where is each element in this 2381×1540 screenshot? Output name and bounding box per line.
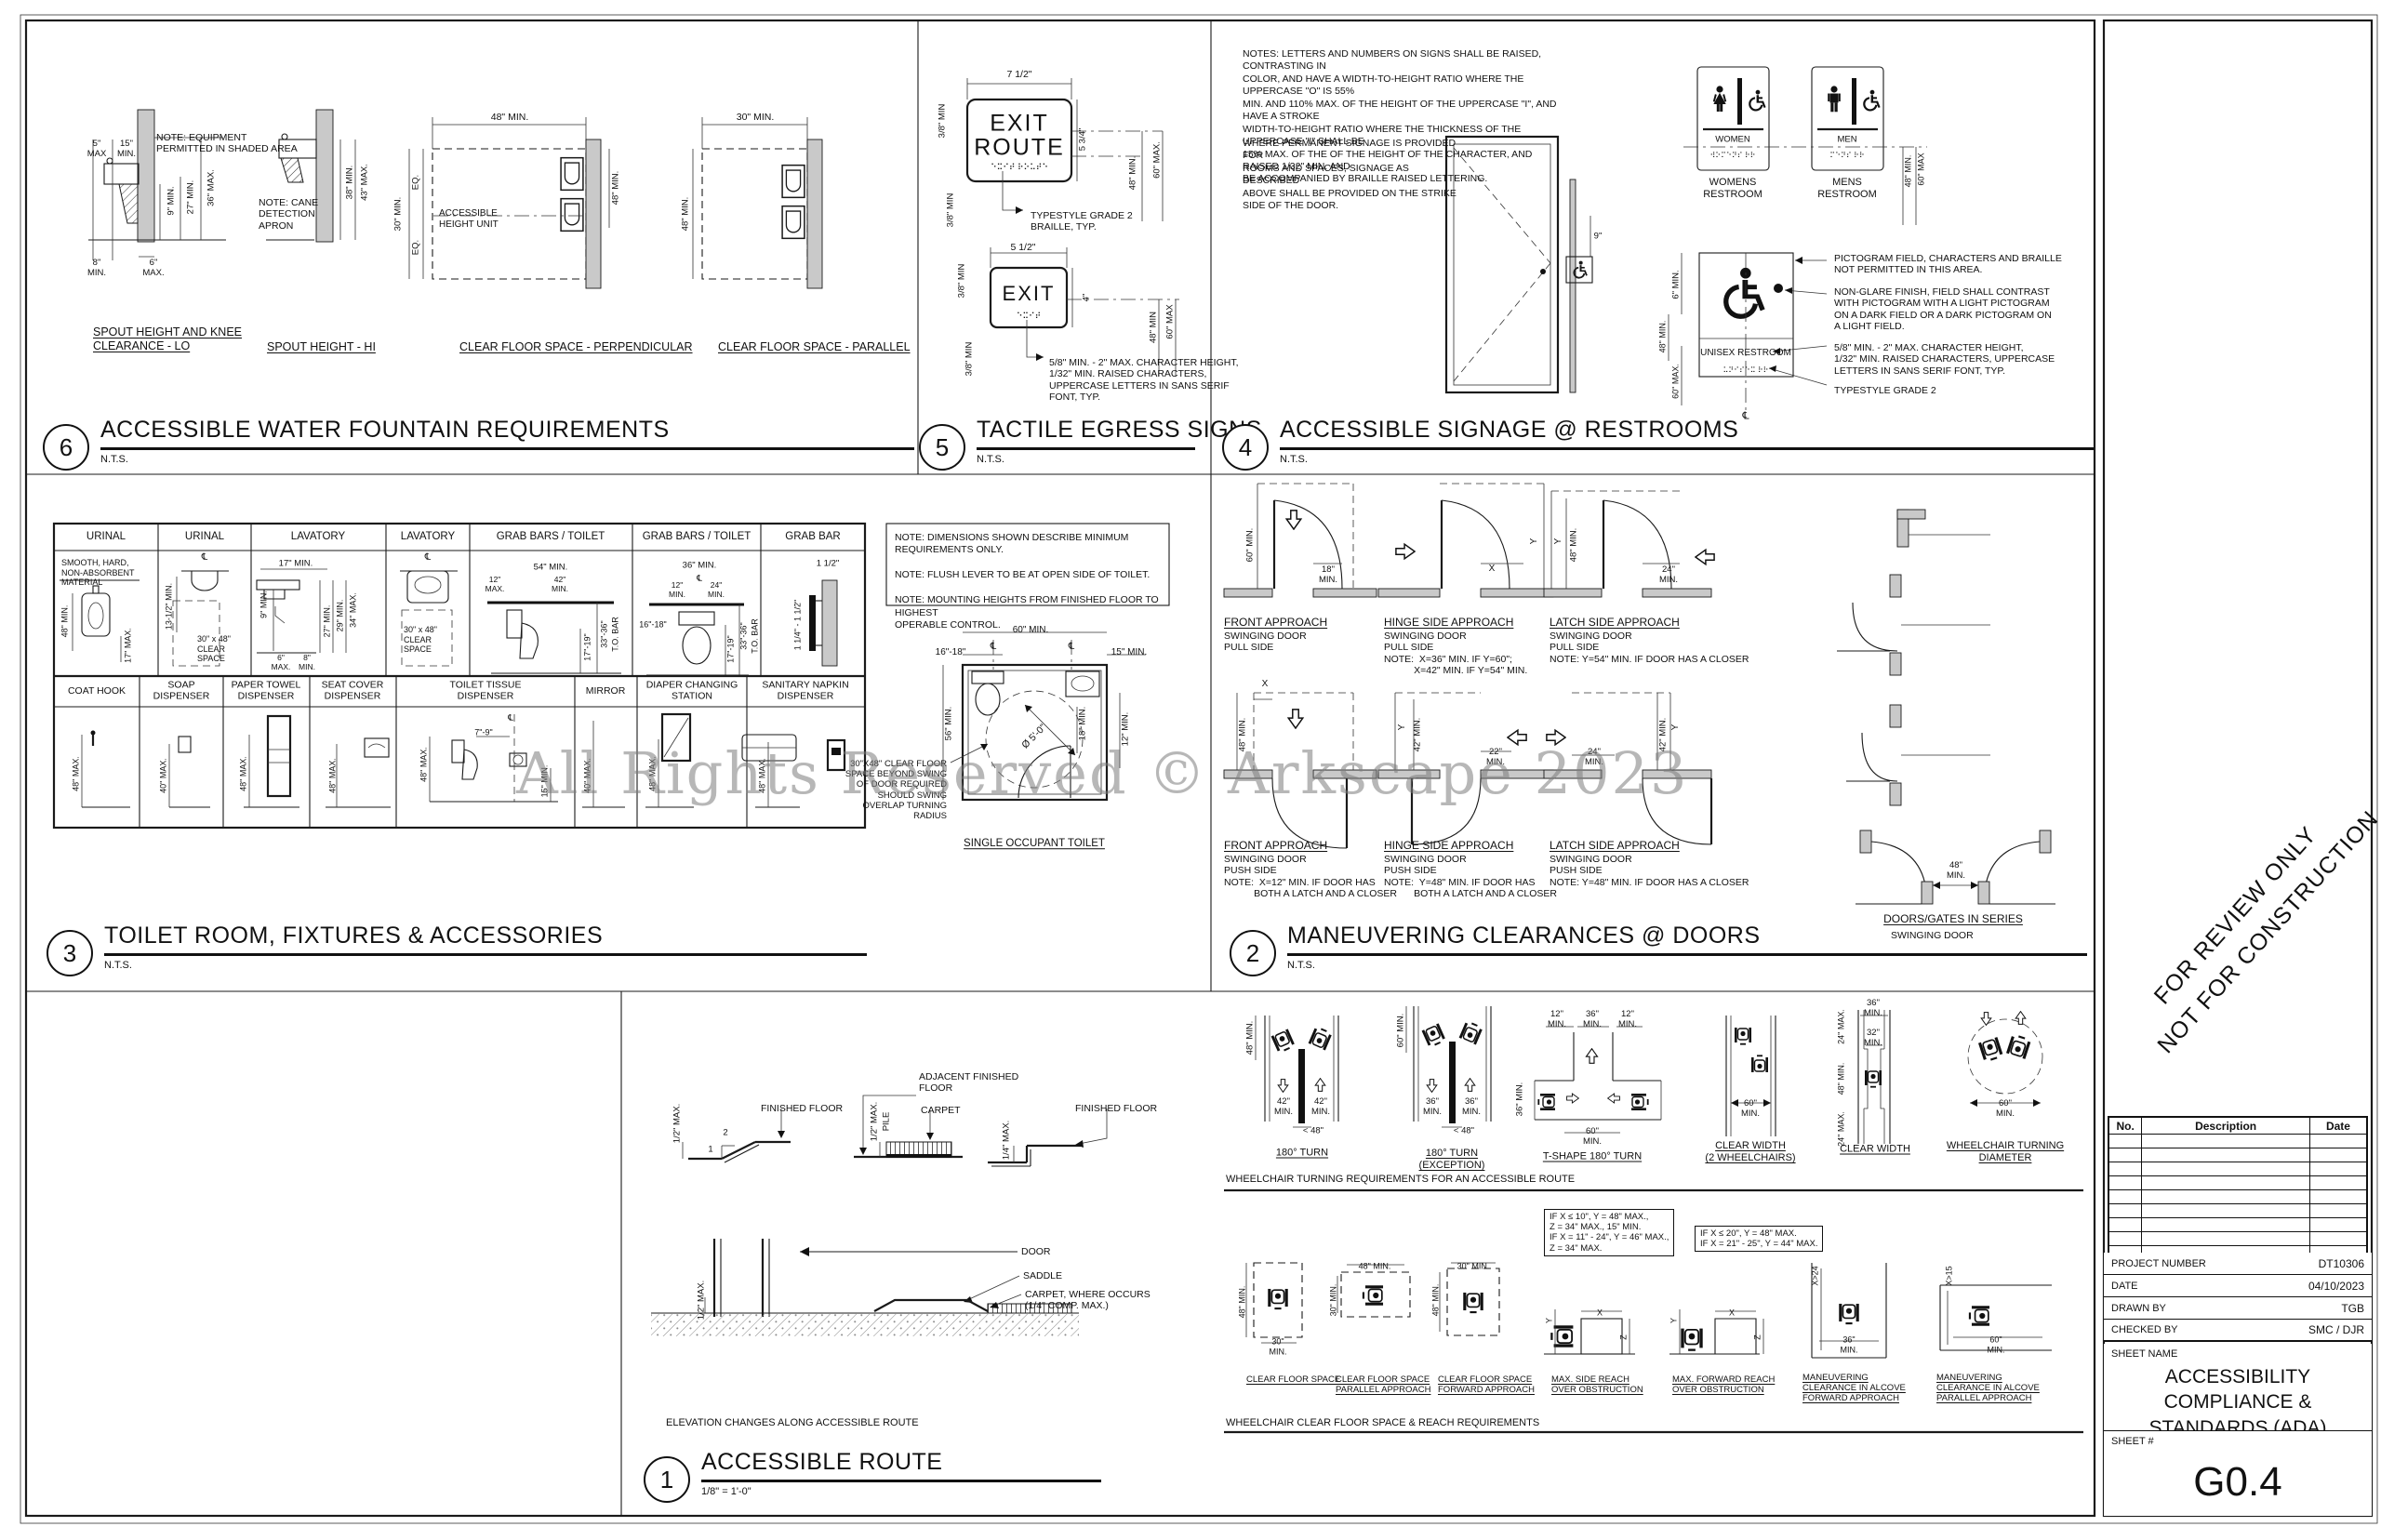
revision-cell-empty (2142, 1135, 2310, 1148)
field-label: SHEET # (2111, 1436, 2154, 1447)
womens-sign-text: WOMEN (1715, 134, 1749, 144)
detail-title-3: 3 TOILET ROOM, FIXTURES & ACCESSORIES N.… (47, 923, 867, 971)
revision-col-header: No. (2108, 1117, 2142, 1135)
dim-label: ℄ (508, 713, 513, 724)
dim-label: 30" MIN. (1457, 1262, 1490, 1272)
dim-label: 48" MIN. (1127, 156, 1137, 191)
section-caption: ELEVATION CHANGES ALONG ACCESSIBLE ROUTE (666, 1417, 919, 1429)
dim-label: 4" (1081, 294, 1091, 302)
dim-label: 56" MIN. (943, 707, 953, 741)
detail-number: 1 (660, 1466, 673, 1494)
dim-label: 48" MIN. (1837, 1063, 1847, 1095)
dim-label: 60" MAX. (1671, 364, 1682, 399)
revision-cell-empty (2142, 1176, 2310, 1190)
dim-label: 6" MAX. (272, 653, 291, 671)
dim-label: 6" MAX. (142, 258, 164, 278)
dim-label: ℄ (697, 574, 702, 584)
detail-caption: LATCH SIDE APPROACH (1550, 616, 1680, 629)
dim-label: 34" MAX. (349, 592, 359, 628)
dim-label: 36" MIN. (1841, 1334, 1858, 1354)
dim-label: Y (1553, 538, 1564, 545)
detail-title-1: 1 ACCESSIBLE ROUTE 1/8" = 1'-0" (644, 1449, 1101, 1497)
detail-caption: CLEAR FLOOR SPACE PARALLEL APPROACH (1336, 1374, 1430, 1395)
revision-cell-empty (2108, 1162, 2142, 1176)
detail-number-badge: 3 (47, 930, 93, 976)
field-label: SHEET NAME (2111, 1348, 2177, 1360)
dim-label: 1/2" MAX. (696, 1281, 706, 1320)
dim-label: 2 (723, 1127, 727, 1137)
detail-number-badge: 1 (644, 1456, 690, 1503)
revision-row (2108, 1148, 2367, 1162)
dim-label: 30" MIN. (1329, 1284, 1339, 1317)
revision-cell-empty (2309, 1232, 2367, 1246)
revision-cell-empty (2108, 1176, 2142, 1190)
revision-cell-empty (2108, 1135, 2142, 1148)
dim-label: 36" MIN. (1423, 1096, 1442, 1117)
dim-label: NOTE: EQUIPMENT PERMITTED IN SHADED AREA (156, 132, 298, 155)
dim-label: X (1262, 679, 1269, 690)
dim-label: 60" MIN. (1395, 1014, 1405, 1048)
dim-label: 48" MIN (1148, 312, 1158, 343)
braille-text: ⠺⠕⠍⠑⠝⠎ ⠗⠗ (1709, 151, 1755, 159)
revision-row (2108, 1162, 2367, 1176)
table-header: GRAB BARS / TOILET (497, 531, 605, 544)
revision-cell-empty (2309, 1204, 2367, 1218)
table-header: COAT HOOK (68, 685, 126, 697)
dim-label: 27" MIN. (323, 605, 333, 638)
dim-label: 60" MAX. (1151, 141, 1162, 179)
dim-label: 48" MIN. (491, 112, 529, 123)
dim-label: 1/2" MAX. (672, 1104, 682, 1143)
revision-cell-empty (2309, 1162, 2367, 1176)
dim-label: 42" MIN. (552, 575, 568, 593)
dim-label: 60" MAX (1917, 153, 1927, 185)
detail-caption: CLEAR WIDTH (1840, 1144, 1910, 1156)
dim-label: 60" MIN. (1244, 528, 1255, 563)
detail-scale: N.T.S. (977, 454, 1262, 465)
dim-label: 33"-36" (739, 622, 750, 649)
title-rule (977, 447, 1195, 450)
date-value: 04/10/2023 (2308, 1280, 2364, 1293)
detail-caption: HINGE SIDE APPROACH (1384, 839, 1513, 852)
dim-label: NOTE: CANE DETECTION APRON (259, 197, 318, 232)
dim-label: SWINGING DOOR PUSH SIDE NOTE: Y=48" MIN.… (1384, 854, 1557, 900)
dim-label: T.O. BAR (611, 617, 621, 652)
dim-label: 5/8" MIN. - 2" MAX. CHARACTER HEIGHT, 1/… (1834, 342, 2055, 377)
revision-cell-empty (2142, 1232, 2310, 1246)
detail-caption: CLEAR WIDTH (2 WHEELCHAIRS) (1705, 1140, 1795, 1164)
dim-label: 15" MIN. (1111, 647, 1148, 658)
dim-label: ℄ (202, 552, 207, 564)
dim-label: 13-1/2" MIN. (165, 583, 175, 630)
dim-label: 38" MIN. (344, 166, 354, 200)
detail-title-4: 4 ACCESSIBLE SIGNAGE @ RESTROOMS N.T.S. (1222, 417, 2094, 465)
dim-label: ℄ (1069, 642, 1074, 653)
dim-label: 29" MIN. (336, 600, 346, 632)
mens-sign-text: MEN (1837, 134, 1856, 144)
dim-label: SWINGING DOOR PUSH SIDE NOTE: Y=48" MIN.… (1550, 854, 1749, 888)
dim-label: 60" MIN. (1583, 1126, 1602, 1147)
dim-label: X (1729, 1308, 1735, 1319)
detail-number-badge: 6 (43, 424, 89, 471)
revision-cell-empty (2108, 1232, 2142, 1246)
dim-label: 3/8" MIN (945, 193, 955, 228)
dim-label: IF X ≤ 10", Y = 48" MAX., Z = 34" MAX., … (1544, 1209, 1674, 1256)
dim-label: NON-GLARE FINISH, FIELD SHALL CONTRAST W… (1834, 286, 2052, 333)
revision-cell-empty (2108, 1190, 2142, 1204)
drawing-sheet: 5" MAX15" MIN.NOTE: EQUIPMENT PERMITTED … (0, 0, 2381, 1540)
detail-title: ACCESSIBLE SIGNAGE @ RESTROOMS (1280, 417, 2094, 447)
dim-label: 48" MAX. (72, 756, 82, 791)
dim-label: FINISHED FLOOR (1075, 1103, 1157, 1114)
toilet-room-notes: NOTE: DIMENSIONS SHOWN DESCRIBE MINIMUM … (895, 532, 1164, 632)
dim-label: TYPESTYLE GRADE 2 BRAILLE, TYP. (1031, 210, 1133, 233)
detail-caption: MANEUVERING CLEARANCE IN ALCOVE PARALLEL… (1936, 1373, 2040, 1404)
dim-label: ADJACENT FINISHED FLOOR (919, 1071, 1018, 1095)
section-caption: WHEELCHAIR CLEAR FLOOR SPACE & REACH REQ… (1226, 1417, 1539, 1429)
dim-label: SWINGING DOOR PUSH SIDE NOTE: X=12" MIN.… (1224, 854, 1397, 900)
dim-label: Y (1529, 538, 1540, 545)
table-header: TOILET TISSUE DISPENSER (449, 680, 521, 703)
accessible-route-drawing (651, 1006, 2083, 1432)
dim-label: WOMENS RESTROOM (1703, 177, 1762, 201)
dim-label: 12" MIN. (1548, 1009, 1566, 1029)
dim-label: < 48" (1454, 1125, 1474, 1135)
field-label: PROJECT NUMBER (2111, 1258, 2206, 1269)
revision-row (2108, 1135, 2367, 1148)
project-number-row: PROJECT NUMBER DT10306 (2104, 1253, 2372, 1275)
dim-label: 7 1/2" (1006, 69, 1031, 80)
dim-label: 30" x 48" CLEAR SPACE (404, 625, 437, 655)
detail-number: 5 (936, 433, 949, 462)
table-header: GRAB BARS / TOILET (643, 531, 752, 544)
dim-label: Y (1670, 724, 1682, 731)
dim-label: 60" MIN. (1741, 1098, 1760, 1119)
dim-label: 12" MIN. (1618, 1009, 1637, 1029)
dim-label: 8" MIN. (87, 258, 106, 278)
dim-label: 33"-36" (600, 620, 610, 647)
revision-cell-empty (2142, 1218, 2310, 1232)
table-header: SOAP DISPENSER (153, 680, 210, 703)
dim-label: 48" MIN. (1568, 528, 1578, 563)
dim-label: 24" MIN. (1659, 564, 1678, 585)
dim-label: 32" MIN. (1864, 1028, 1882, 1048)
table-header: MIRROR (586, 685, 626, 697)
date-row: DATE 04/10/2023 (2104, 1275, 2372, 1297)
dim-label: 60" MAX (1164, 304, 1175, 339)
dim-label: 36" MIN. (683, 560, 717, 570)
dim-label: 17" MIN. (279, 558, 313, 568)
dim-label: 54" MIN. (534, 562, 568, 572)
sheet-name: ACCESSIBILITY COMPLIANCE & STANDARDS (AD… (2104, 1364, 2372, 1440)
field-label: DRAWN BY (2111, 1303, 2166, 1314)
dim-label: SMOOTH, HARD, NON-ABSORBENT MATERIAL (61, 558, 135, 588)
dim-label: 24" MIN. (708, 580, 725, 599)
detail-caption: HINGE SIDE APPROACH (1384, 616, 1513, 629)
dim-label: 36" MIN. (1583, 1009, 1602, 1029)
sheet-name-section: SHEET NAME ACCESSIBILITY COMPLIANCE & ST… (2104, 1344, 2372, 1431)
dim-label: 17"-19" (583, 633, 593, 660)
dim-label: 48" MIN. (1904, 155, 1914, 188)
detail-caption: SPOUT HEIGHT - HI (267, 340, 376, 354)
dim-label: 36" MIN. (1462, 1096, 1481, 1117)
detail-caption: MAX. FORWARD REACH OVER OBSTRUCTION (1672, 1374, 1775, 1395)
detail-title: TOILET ROOM, FIXTURES & ACCESSORIES (104, 923, 867, 953)
detail-title: TACTILE EGRESS SIGNS (977, 417, 1262, 447)
revision-row (2108, 1218, 2367, 1232)
dim-label: PILE (881, 1112, 891, 1132)
braille-text: ⠑⠭⠊⠞ (1017, 312, 1041, 322)
dim-label: EQ. (410, 175, 420, 190)
dim-label: 5" MAX (87, 139, 107, 159)
dim-label: 48" MIN. (1359, 1262, 1391, 1272)
dim-label: 60" MIN. (1988, 1334, 2005, 1354)
dim-label: 18" MIN. (1077, 707, 1087, 741)
dim-label: 30" MIN. (737, 112, 775, 123)
title-rule (104, 953, 867, 956)
field-label: CHECKED BY (2111, 1324, 2178, 1335)
dim-label: 5 1/2" (1010, 242, 1035, 253)
table-header: DIAPER CHANGING STATION (646, 680, 738, 703)
dim-label: 3/8" MIN (937, 104, 947, 139)
dim-label: 48" MIN. (1244, 1021, 1255, 1055)
revision-cell-empty (2108, 1148, 2142, 1162)
dim-label: 48" MAX. (239, 756, 249, 791)
detail-caption: MANEUVERING CLEARANCE IN ALCOVE FORWARD … (1802, 1373, 1906, 1404)
exit-sign-text: EXIT (1003, 284, 1056, 304)
dim-label: 48" MIN. (1658, 321, 1669, 353)
dim-label: 48" MIN. (1947, 860, 1965, 881)
dim-label: 5 3/4" (1077, 128, 1087, 152)
dim-label: Z (1619, 1334, 1629, 1340)
detail-caption: 180° TURN (1276, 1148, 1328, 1160)
detail-caption: LATCH SIDE APPROACH (1550, 839, 1680, 852)
table-header: LAVATORY (401, 531, 455, 544)
revision-cell-empty (2142, 1204, 2310, 1218)
checked-by-row: CHECKED BY SMC / DJR (2104, 1320, 2372, 1342)
table-header: URINAL (86, 531, 126, 544)
dim-label: Y (1397, 724, 1408, 731)
revision-cell-empty (2142, 1162, 2310, 1176)
dim-label: 48" MAX. (419, 747, 430, 782)
dim-label: CARPET (921, 1105, 961, 1116)
title-rule (1280, 447, 2094, 450)
dim-label: 42" MIN. (1311, 1096, 1330, 1117)
detail-caption: FRONT APPROACH (1224, 839, 1327, 852)
dim-label: 12" MAX. (486, 575, 505, 593)
dim-label: 48" MIN. (680, 197, 690, 232)
dim-label: 16"-18" (936, 647, 966, 658)
revision-row (2108, 1190, 2367, 1204)
dim-label: 36" MAX. (206, 169, 216, 206)
dim-label: 27" MIN. (185, 180, 195, 215)
dim-label: X (1597, 1308, 1603, 1319)
dim-label: 1 (708, 1144, 712, 1154)
dim-label: SADDLE (1023, 1270, 1062, 1281)
exit-route-sign-text: EXIT ROUTE (974, 113, 1065, 160)
detail-number: 3 (63, 939, 76, 968)
detail-number-badge: 5 (919, 424, 965, 471)
checked-by-value: SMC / DJR (2308, 1323, 2364, 1336)
dim-label: X (1489, 564, 1496, 575)
dim-label: 36" MIN. (1864, 998, 1882, 1018)
dim-label: 24" MAX. (1837, 1111, 1847, 1147)
detail-title-2: 2 MANEUVERING CLEARANCES @ DOORS N.T.S. (1230, 923, 2087, 971)
revision-row (2108, 1232, 2367, 1246)
dim-label: 9" MIN. (166, 186, 176, 215)
dim-label: X>15 (1945, 1266, 1955, 1285)
table-header: GRAB BAR (785, 531, 840, 544)
detail-caption: SINGLE OCCUPANT TOILET (964, 838, 1105, 851)
dim-label: DOOR (1021, 1246, 1051, 1257)
dim-label: 7"-9" (474, 728, 492, 738)
detail-scale: 1/8" = 1'-0" (701, 1486, 1101, 1497)
detail-number: 6 (60, 433, 73, 462)
dim-label: 42" MIN. (1274, 1096, 1293, 1117)
project-number-value: DT10306 (2319, 1257, 2364, 1270)
revision-cell-empty (2309, 1176, 2367, 1190)
dim-label: 48" MIN. (60, 605, 71, 638)
drawn-by-row: DRAWN BY TGB (2104, 1297, 2372, 1320)
dim-label: ℄ (991, 642, 996, 653)
table-header: PAPER TOWEL DISPENSER (232, 680, 301, 703)
dim-label: 36" MIN. (1514, 1082, 1524, 1117)
dim-label: Y (1669, 1318, 1680, 1323)
signage-strike-side-note: WHERE PERMANENT SIGNAGE IS PROVIDED FOR … (1243, 138, 1466, 213)
dim-label: ℄ (425, 552, 431, 564)
unisex-sign-text: UNISEX RESTROOM (1700, 348, 1791, 359)
dim-label: TYPESTYLE GRADE 2 (1834, 385, 1936, 396)
detail-caption: T-SHAPE 180° TURN (1543, 1151, 1642, 1163)
detail-scale: N.T.S. (1287, 960, 2087, 971)
section-caption: WHEELCHAIR TURNING REQUIREMENTS FOR AN A… (1226, 1174, 1575, 1186)
detail-caption: MAX. SIDE REACH OVER OBSTRUCTION (1551, 1374, 1643, 1395)
revision-row (2108, 1176, 2367, 1190)
dim-label: FINISHED FLOOR (761, 1103, 843, 1114)
detail-scale: N.T.S. (104, 960, 867, 971)
dim-label: 1/4" MAX. (1001, 1121, 1011, 1160)
dim-label: 1 1/2" (817, 558, 840, 568)
braille-text: ⠥⠝⠊⠎⠑⠭ ⠗⠗ (1723, 365, 1768, 374)
dim-label: 24" MAX. (1837, 1009, 1847, 1044)
dim-label: X>24 (1811, 1266, 1821, 1285)
table-header: URINAL (185, 531, 224, 544)
watermark: All Rights Reserved © Arkscape 2023 (516, 739, 1688, 807)
dim-label: 9" (1594, 231, 1603, 241)
table-header: LAVATORY (291, 531, 345, 544)
detail-caption: CLEAR FLOOR SPACE (1246, 1374, 1340, 1385)
revision-cell-empty (2309, 1218, 2367, 1232)
revision-cell-empty (2108, 1218, 2142, 1232)
detail-title-5: 5 TACTILE EGRESS SIGNS N.T.S. (919, 417, 1262, 465)
sheet-number: G0.4 (2104, 1459, 2372, 1506)
title-rule (1287, 953, 2087, 956)
table-header: SANITARY NAPKIN DISPENSER (762, 680, 848, 703)
detail-caption: 180° TURN (EXCEPTION) (1419, 1148, 1485, 1172)
dim-label: MENS RESTROOM (1817, 177, 1877, 201)
dim-label: 60" MIN. (1996, 1098, 2015, 1119)
revision-cell-empty (2108, 1204, 2142, 1218)
dim-label: EQ. (410, 240, 420, 255)
dim-label: 30" MIN. (1270, 1336, 1287, 1356)
dim-label: 30" MIN. (392, 197, 403, 232)
dim-label: T.O. BAR (751, 618, 761, 654)
dim-label: 17"-19" (726, 635, 737, 662)
field-label: DATE (2111, 1281, 2138, 1292)
detail-title: ACCESSIBLE WATER FOUNTAIN REQUIREMENTS (100, 417, 914, 447)
dim-label: SWINGING DOOR PULL SIDE (1224, 631, 1307, 654)
dim-label: 8" MIN. (299, 653, 315, 671)
revision-cell-empty (2309, 1135, 2367, 1148)
dim-label: PICTOGRAM FIELD, CHARACTERS AND BRAILLE … (1834, 253, 2062, 276)
detail-title-6: 6 ACCESSIBLE WATER FOUNTAIN REQUIREMENTS… (43, 417, 914, 465)
dim-label: 48" MIN. (1238, 1286, 1248, 1319)
dim-label: IF X ≤ 20", Y = 48" MAX. IF X = 21" - 25… (1695, 1226, 1823, 1252)
revision-header-row: No.DescriptionDate (2108, 1117, 2367, 1135)
dim-label: 5/8" MIN. - 2" MAX. CHARACTER HEIGHT, 1/… (1049, 357, 1238, 404)
detail-caption: CLEAR FLOOR SPACE FORWARD APPROACH (1438, 1374, 1535, 1395)
dim-label: ACCESSIBLE HEIGHT UNIT (439, 208, 499, 231)
revision-col-header: Date (2309, 1117, 2367, 1135)
dim-label: 18" MIN. (1319, 564, 1337, 585)
title-rule (701, 1480, 1101, 1482)
dim-label: 48" MIN. (1431, 1284, 1442, 1317)
detail-number-badge: 4 (1222, 424, 1269, 471)
title-rule (100, 447, 914, 450)
dim-label: 3/8" MIN (956, 264, 966, 299)
revision-table: No.DescriptionDate (2108, 1116, 2368, 1275)
dim-label: SWINGING DOOR PULL SIDE NOTE: X=36" MIN.… (1384, 631, 1527, 677)
revision-cell-empty (2142, 1190, 2310, 1204)
dim-label: SWINGING DOOR PULL SIDE NOTE: Y=54" MIN.… (1550, 631, 1749, 665)
dim-label: 40" MAX. (159, 758, 169, 793)
detail-caption: SPOUT HEIGHT AND KNEE CLEARANCE - LO (93, 325, 242, 353)
dim-label: 1/2" MAX. (869, 1102, 879, 1141)
dim-label: 48" MAX. (328, 758, 339, 793)
dim-label: 15" MIN. (117, 139, 136, 159)
detail-caption: CLEAR FLOOR SPACE - PERPENDICULAR (459, 340, 693, 354)
dim-label: 30" x 48" CLEAR SPACE (197, 634, 231, 664)
dim-label: 16"-18" (639, 620, 666, 631)
revision-row (2108, 1204, 2367, 1218)
dim-label: 9" MIN. (259, 591, 270, 618)
detail-title: MANEUVERING CLEARANCES @ DOORS (1287, 923, 2087, 953)
revision-cell-empty (2142, 1148, 2310, 1162)
detail-title: ACCESSIBLE ROUTE (701, 1449, 1101, 1480)
revision-cell-empty (2309, 1190, 2367, 1204)
revision-cell-empty (2309, 1148, 2367, 1162)
detail-caption: WHEELCHAIR TURNING DIAMETER (1947, 1140, 2064, 1164)
dim-label: 17" MAX. (124, 628, 134, 663)
dim-label: 1 1/4" - 1 1/2" (793, 600, 804, 650)
revision-col-header: Description (2142, 1117, 2310, 1135)
drawn-by-value: TGB (2341, 1302, 2364, 1315)
sheet-number-section: SHEET # G0.4 (2104, 1431, 2372, 1516)
detail-number: 2 (1246, 939, 1259, 968)
braille-text: ⠑⠭⠊⠞ ⠗⠕⠥⠞⠑ (991, 163, 1048, 173)
dim-label: CARPET, WHERE OCCURS (1/4" COMP. MAX.) (1025, 1289, 1151, 1312)
dim-label: 48" MIN. (610, 171, 620, 206)
dim-label: Z (1753, 1334, 1763, 1340)
detail-caption: CLEAR FLOOR SPACE - PARALLEL (718, 340, 911, 354)
dim-label: 6" MIN. (1670, 270, 1681, 299)
dim-label: 12" MIN. (669, 580, 685, 599)
detail-scale: N.T.S. (100, 454, 914, 465)
dim-label: 3/8" MIN (964, 342, 974, 377)
braille-text: ⠍⠑⠝⠎ ⠗⠗ (1829, 151, 1864, 159)
detail-number: 4 (1239, 433, 1252, 462)
table-header: SEAT COVER DISPENSER (322, 680, 384, 703)
